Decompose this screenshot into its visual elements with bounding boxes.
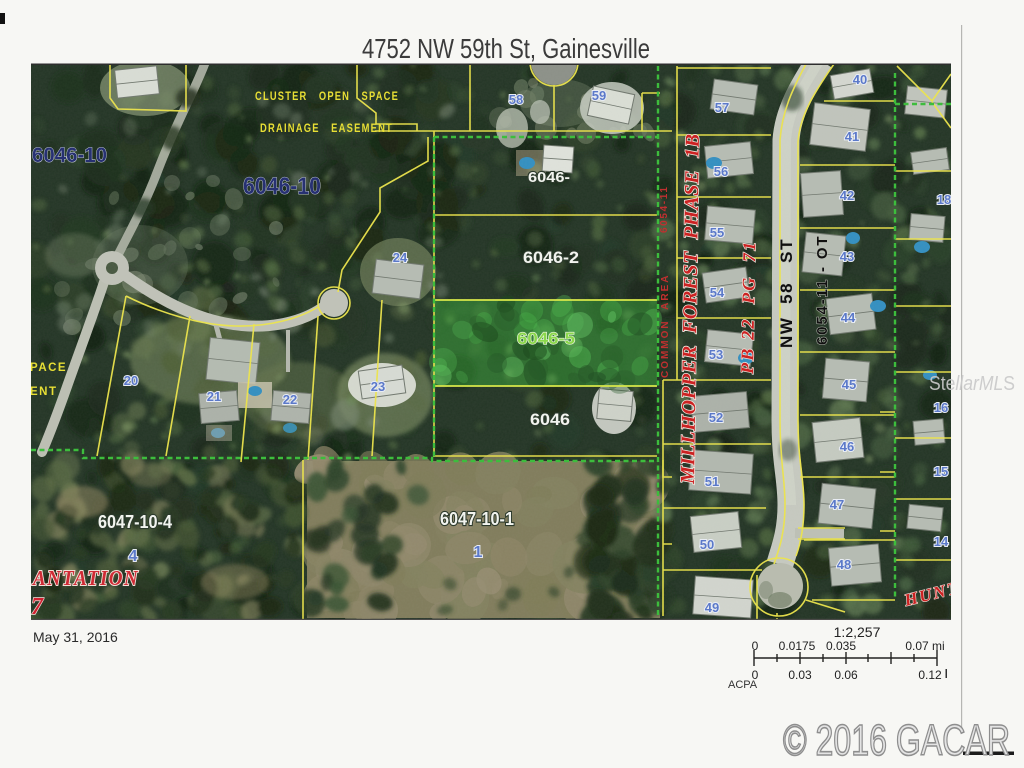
- svg-text:44: 44: [841, 310, 856, 325]
- svg-text:May 31, 2016: May 31, 2016: [33, 629, 118, 645]
- svg-text:52: 52: [709, 410, 723, 425]
- svg-text:PACE: PACE: [30, 362, 67, 374]
- svg-text:51: 51: [705, 474, 719, 489]
- svg-text:46: 46: [840, 439, 854, 454]
- svg-text:0: 0: [752, 639, 759, 653]
- svg-text:59: 59: [592, 88, 606, 103]
- svg-text:CLUSTER OPEN SPACE: CLUSTER OPEN SPACE: [255, 91, 399, 103]
- svg-text:40: 40: [853, 72, 867, 87]
- svg-text:6046-10: 6046-10: [32, 144, 107, 167]
- svg-text:20: 20: [124, 373, 138, 388]
- svg-text:© 2016 GACAR: © 2016 GACAR: [783, 716, 1010, 765]
- svg-text:StellarMLS: StellarMLS: [929, 373, 1015, 395]
- svg-text:DRAINAGE EASEMENT: DRAINAGE EASEMENT: [260, 123, 393, 135]
- svg-text:58: 58: [509, 92, 523, 107]
- svg-text:56: 56: [714, 164, 728, 179]
- svg-text:41: 41: [845, 129, 859, 144]
- svg-text:ANTATION: ANTATION: [31, 566, 139, 590]
- svg-text:15: 15: [934, 464, 948, 479]
- svg-text:0.035: 0.035: [826, 639, 856, 653]
- svg-text:6046-5: 6046-5: [517, 329, 575, 348]
- svg-text:49: 49: [705, 600, 719, 615]
- svg-text:COMMON AREA: COMMON AREA: [660, 274, 671, 378]
- svg-text:24: 24: [393, 250, 408, 265]
- svg-text:53: 53: [709, 347, 723, 362]
- svg-text:21: 21: [207, 389, 221, 404]
- svg-text:6046: 6046: [530, 410, 570, 429]
- svg-text:PB 22 PG 71: PB 22 PG 71: [737, 240, 759, 375]
- svg-text:6054-11 - OT: 6054-11 - OT: [814, 235, 831, 345]
- svg-text:ENT: ENT: [30, 386, 58, 398]
- svg-text:42: 42: [840, 188, 854, 203]
- svg-text:6047-10-1: 6047-10-1: [440, 509, 514, 529]
- svg-text:45: 45: [842, 377, 856, 392]
- svg-text:50: 50: [700, 537, 714, 552]
- svg-text:1:2,257: 1:2,257: [834, 624, 881, 640]
- svg-text:43: 43: [840, 249, 854, 264]
- svg-text:6046-2: 6046-2: [523, 248, 579, 267]
- svg-text:6054-11: 6054-11: [659, 187, 670, 233]
- svg-text:16: 16: [934, 400, 948, 415]
- svg-text:NW 58 ST: NW 58 ST: [777, 236, 796, 348]
- svg-text:23: 23: [371, 379, 385, 394]
- svg-text:6047-10-4: 6047-10-4: [98, 512, 172, 532]
- svg-text:47: 47: [830, 497, 844, 512]
- svg-text:1: 1: [474, 544, 483, 561]
- svg-text:14: 14: [934, 534, 949, 549]
- svg-text:4752 NW 59th St, Gainesville: 4752 NW 59th St, Gainesville: [362, 33, 650, 64]
- svg-text:54: 54: [710, 285, 725, 300]
- svg-text:48: 48: [837, 557, 851, 572]
- svg-text:22: 22: [283, 392, 297, 407]
- svg-text:0.06: 0.06: [834, 668, 858, 682]
- svg-text:4: 4: [129, 548, 138, 565]
- svg-text:6046-10: 6046-10: [243, 173, 321, 200]
- svg-text:0.0175: 0.0175: [779, 639, 816, 653]
- svg-text:0.03: 0.03: [788, 668, 812, 682]
- svg-text:7: 7: [31, 594, 44, 620]
- svg-text:57: 57: [715, 100, 729, 115]
- svg-text:6046-: 6046-: [528, 169, 570, 186]
- svg-text:55: 55: [710, 225, 724, 240]
- svg-text:0.12: 0.12: [918, 668, 942, 682]
- svg-text:18: 18: [937, 192, 951, 207]
- svg-text:0.07 mi: 0.07 mi: [905, 639, 944, 653]
- svg-text:ACPA: ACPA: [728, 679, 758, 691]
